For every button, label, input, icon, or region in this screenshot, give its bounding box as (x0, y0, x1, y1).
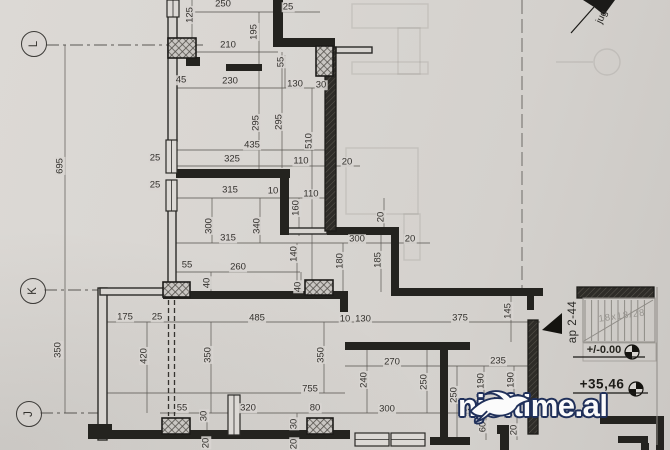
dimension-label: 295 (274, 113, 284, 131)
dimension-label: 435 (243, 140, 261, 150)
dimension-label: 260 (229, 262, 247, 272)
floor-plan-photo: L K J 2502512519521055452301303029529551… (0, 0, 670, 450)
dimension-label: 300 (204, 217, 214, 235)
dimension-label: 10 (267, 186, 280, 196)
dimension-label: 755 (301, 384, 319, 394)
dimension-label: 10 (339, 314, 352, 324)
dimension-label: 40 (202, 277, 212, 290)
dimension-label: 340 (252, 217, 262, 235)
dimension-label: 325 (223, 154, 241, 164)
dimension-label: 300 (378, 404, 396, 414)
dimension-label: 510 (304, 132, 314, 150)
dimension-label: 250 (419, 373, 429, 391)
dimension-label: 55 (181, 260, 194, 270)
dimension-label: 20 (289, 438, 299, 450)
dimension-label: 195 (249, 23, 259, 41)
dimension-label: 145 (503, 302, 513, 320)
dimension-label: 300 (348, 234, 366, 244)
swallow-bird-icon (468, 388, 532, 424)
dimension-label: 320 (239, 403, 257, 413)
dimension-label: 175 (116, 312, 134, 322)
dimension-label: 315 (221, 185, 239, 195)
dimension-label: 25 (149, 153, 162, 163)
watermark: njoftime.al (468, 388, 608, 424)
dimension-label: 485 (248, 313, 266, 323)
dimension-label: 270 (383, 357, 401, 367)
dimension-label: 20 (341, 157, 354, 167)
dimension-label: 30 (289, 418, 299, 431)
dimension-label: 185 (373, 251, 383, 269)
dimension-label: 20 (509, 424, 519, 437)
dimension-label: 190 (506, 371, 516, 389)
dimension-label: 20 (404, 234, 417, 244)
dimension-label: 350 (203, 346, 213, 364)
level-marker-zero-label: +/-0.00 (587, 344, 622, 356)
dimension-label: 80 (309, 403, 322, 413)
dimension-label: 25 (149, 180, 162, 190)
dimension-label: 420 (139, 347, 149, 365)
dimension-label: 140 (289, 245, 299, 263)
dimension-label: 230 (221, 76, 239, 86)
dimension-label: 375 (451, 313, 469, 323)
dimension-label: 180 (335, 252, 345, 270)
dimension-label: 25 (151, 312, 164, 322)
dimension-label: 240 (359, 371, 369, 389)
dimension-label: 130 (286, 79, 304, 89)
dimension-label: 250 (214, 0, 232, 9)
dimension-label: 45 (175, 75, 188, 85)
dimension-label: 25 (282, 2, 295, 12)
dimension-label: 20 (201, 437, 211, 450)
dimension-label: 30 (315, 80, 328, 90)
dimension-label: 130 (354, 314, 372, 324)
dimension-label: 55 (276, 56, 286, 69)
dimension-label: 210 (219, 40, 237, 50)
dimension-label: 295 (251, 114, 261, 132)
dimension-label: 110 (302, 189, 319, 199)
dimension-label: 110 (292, 156, 309, 166)
dimension-labels: 2502512519521055452301303029529551043532… (0, 0, 670, 450)
dimension-label: 20 (376, 211, 386, 224)
dimension-label: 235 (489, 356, 507, 366)
dimension-label: 40 (293, 281, 303, 294)
dimension-label: 315 (219, 233, 237, 243)
apartment-number-label: ap 2-44 (567, 301, 579, 344)
dimension-label: 160 (291, 199, 301, 217)
dimension-label: 55 (176, 403, 189, 413)
dimension-label: 350 (316, 346, 326, 364)
dimension-label: 30 (199, 410, 209, 423)
dimension-label: 350 (53, 341, 63, 359)
dimension-label: 695 (55, 157, 65, 175)
dimension-label: 125 (185, 6, 195, 24)
